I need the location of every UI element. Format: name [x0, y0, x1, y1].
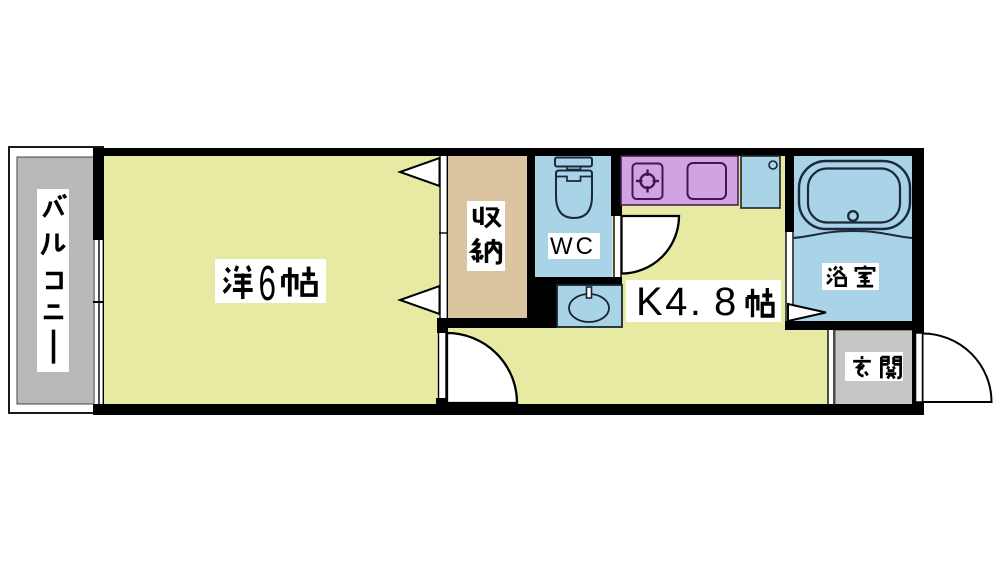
svg-text:K4.: K4.	[636, 280, 704, 324]
svg-text:8: 8	[714, 280, 736, 324]
svg-text:WC: WC	[550, 233, 596, 260]
svg-text:6: 6	[259, 256, 276, 311]
